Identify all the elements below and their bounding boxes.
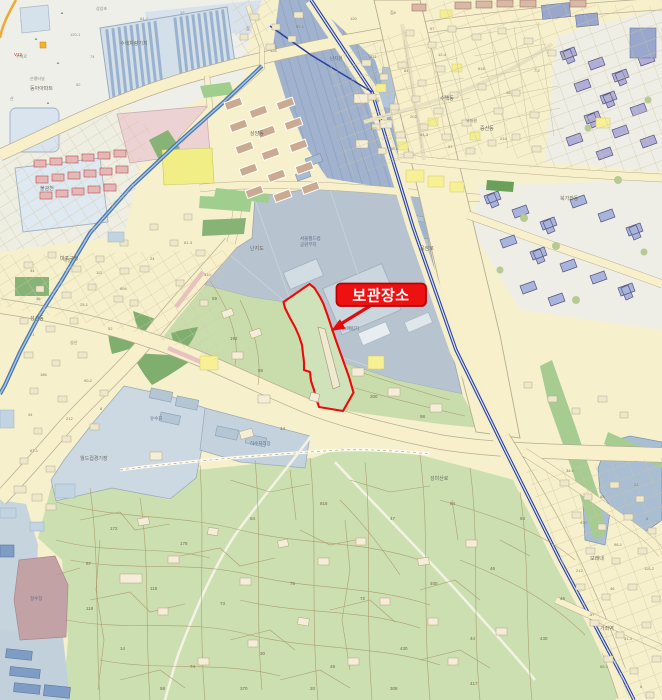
svg-text:212: 212 — [576, 568, 583, 573]
svg-text:84-3: 84-3 — [420, 132, 429, 137]
svg-text:192: 192 — [370, 126, 377, 131]
svg-text:120: 120 — [350, 16, 357, 21]
svg-text:88: 88 — [600, 494, 605, 499]
svg-text:214: 214 — [500, 136, 507, 141]
svg-text:▲: ▲ — [46, 100, 50, 105]
svg-text:가좌역: 가좌역 — [600, 625, 614, 632]
svg-text:65: 65 — [258, 368, 264, 373]
svg-text:64: 64 — [250, 516, 256, 521]
svg-text:모래내: 모래내 — [590, 555, 604, 562]
svg-text:14: 14 — [120, 646, 126, 651]
svg-text:231: 231 — [370, 54, 377, 59]
svg-text:목동: 목동 — [64, 258, 72, 263]
svg-text:73: 73 — [220, 601, 226, 606]
svg-text:성산: 성산 — [70, 339, 78, 345]
svg-text:증산동: 증산동 — [480, 125, 494, 132]
svg-text:64: 64 — [520, 516, 526, 521]
svg-text:400: 400 — [430, 581, 438, 586]
svg-text:성미산로: 성미산로 — [430, 475, 449, 482]
svg-text:45: 45 — [506, 90, 511, 95]
svg-text:59: 59 — [212, 296, 218, 301]
svg-text:14: 14 — [280, 426, 286, 431]
svg-text:118: 118 — [86, 606, 94, 611]
svg-text:정수장: 정수장 — [30, 595, 42, 602]
svg-text:유: 유 — [376, 98, 380, 103]
svg-text:57: 57 — [590, 612, 595, 617]
svg-text:202: 202 — [410, 114, 417, 119]
svg-text:31: 31 — [444, 94, 449, 99]
svg-text:7-2: 7-2 — [534, 68, 541, 73]
svg-text:470: 470 — [580, 520, 587, 525]
svg-text:난지천: 난지천 — [330, 55, 342, 62]
svg-text:20: 20 — [310, 686, 316, 691]
svg-text:58: 58 — [160, 686, 166, 691]
svg-text:25-1: 25-1 — [80, 302, 89, 307]
svg-text:짐: 짐 — [246, 25, 250, 31]
svg-text:110-2: 110-2 — [644, 566, 655, 571]
svg-text:88-1: 88-1 — [600, 664, 609, 669]
svg-text:52: 52 — [108, 326, 113, 331]
svg-text:동아아파트: 동아아파트 — [30, 85, 53, 92]
svg-text:성산동: 성산동 — [30, 315, 44, 322]
svg-text:61-3: 61-3 — [184, 240, 193, 245]
svg-text:212: 212 — [66, 416, 73, 421]
svg-text:172: 172 — [110, 526, 118, 531]
svg-text:308: 308 — [390, 686, 398, 691]
svg-text:118: 118 — [150, 586, 158, 591]
svg-text:52: 52 — [76, 82, 81, 87]
svg-text:44: 44 — [28, 412, 33, 417]
svg-text:816: 816 — [320, 501, 328, 506]
svg-text:24: 24 — [150, 256, 155, 261]
svg-text:수색차량기지: 수색차량기지 — [120, 40, 148, 47]
svg-text:월드컵경기장: 월드컵경기장 — [80, 455, 108, 462]
svg-text:31-4: 31-4 — [624, 636, 633, 641]
svg-text:430: 430 — [400, 646, 408, 651]
svg-text:96-1: 96-1 — [614, 542, 623, 547]
svg-text:44: 44 — [470, 636, 476, 641]
svg-text:98: 98 — [420, 414, 426, 419]
svg-text:57-1: 57-1 — [296, 24, 305, 29]
svg-text:818: 818 — [478, 66, 485, 71]
svg-text:74: 74 — [190, 664, 196, 669]
svg-text:공원부지: 공원부지 — [300, 241, 317, 248]
svg-text:▲: ▲ — [34, 36, 38, 41]
svg-text:46: 46 — [560, 596, 566, 601]
svg-text:57: 57 — [430, 26, 435, 31]
svg-text:12-4: 12-4 — [438, 52, 447, 57]
svg-text:난지도: 난지도 — [250, 245, 264, 252]
svg-text:90-2: 90-2 — [84, 378, 93, 383]
svg-text:▲: ▲ — [60, 10, 64, 15]
svg-text:46: 46 — [610, 586, 615, 591]
svg-text:64: 64 — [450, 501, 456, 506]
svg-text:30: 30 — [260, 651, 266, 656]
svg-text:112: 112 — [96, 270, 103, 275]
svg-text:산: 산 — [10, 95, 14, 101]
svg-text:74: 74 — [90, 54, 95, 59]
svg-text:71: 71 — [30, 332, 35, 337]
svg-text:370: 370 — [240, 686, 248, 691]
svg-text:47: 47 — [390, 516, 396, 521]
svg-text:417: 417 — [470, 681, 478, 686]
svg-text:유수지: 유수지 — [150, 415, 162, 422]
svg-text:유치원: 유치원 — [466, 117, 477, 123]
svg-text:48-1: 48-1 — [390, 146, 399, 151]
svg-text:응암로: 응암로 — [420, 245, 434, 252]
svg-text:V12: V12 — [14, 52, 23, 57]
svg-text:46: 46 — [490, 566, 496, 571]
svg-text:310: 310 — [204, 272, 211, 277]
svg-text:짐6: 짐6 — [390, 9, 397, 15]
svg-text:북가좌동: 북가좌동 — [560, 195, 579, 202]
svg-text:상암초: 상암초 — [96, 5, 107, 11]
svg-text:34-2: 34-2 — [566, 468, 575, 473]
svg-text:57: 57 — [448, 144, 453, 149]
svg-text:보관장소: 보관장소 — [352, 287, 409, 305]
svg-text:120-1: 120-1 — [70, 32, 81, 37]
svg-text:67-1: 67-1 — [30, 448, 39, 453]
svg-text:48: 48 — [36, 296, 41, 301]
svg-text:72: 72 — [360, 596, 366, 601]
svg-text:76: 76 — [290, 581, 296, 586]
svg-text:48: 48 — [330, 664, 336, 669]
svg-text:21: 21 — [634, 482, 639, 487]
svg-text:은평터널: 은평터널 — [30, 75, 45, 81]
svg-text:서울월드컵: 서울월드컵 — [300, 235, 321, 242]
svg-text:상암동: 상암동 — [250, 130, 264, 137]
svg-text:84: 84 — [404, 68, 409, 73]
svg-text:하수처리장: 하수처리장 — [250, 440, 271, 447]
svg-text:34: 34 — [30, 268, 35, 273]
svg-text:186: 186 — [40, 372, 47, 377]
svg-text:694: 694 — [120, 286, 127, 291]
svg-text:192: 192 — [230, 336, 238, 341]
svg-text:87: 87 — [86, 561, 92, 566]
svg-text:불광천: 불광천 — [40, 185, 54, 192]
svg-text:124: 124 — [270, 48, 277, 53]
svg-text:200: 200 — [370, 394, 378, 399]
svg-text:▲: ▲ — [56, 60, 60, 65]
svg-text:178: 178 — [180, 541, 188, 546]
svg-text:430: 430 — [540, 636, 548, 641]
